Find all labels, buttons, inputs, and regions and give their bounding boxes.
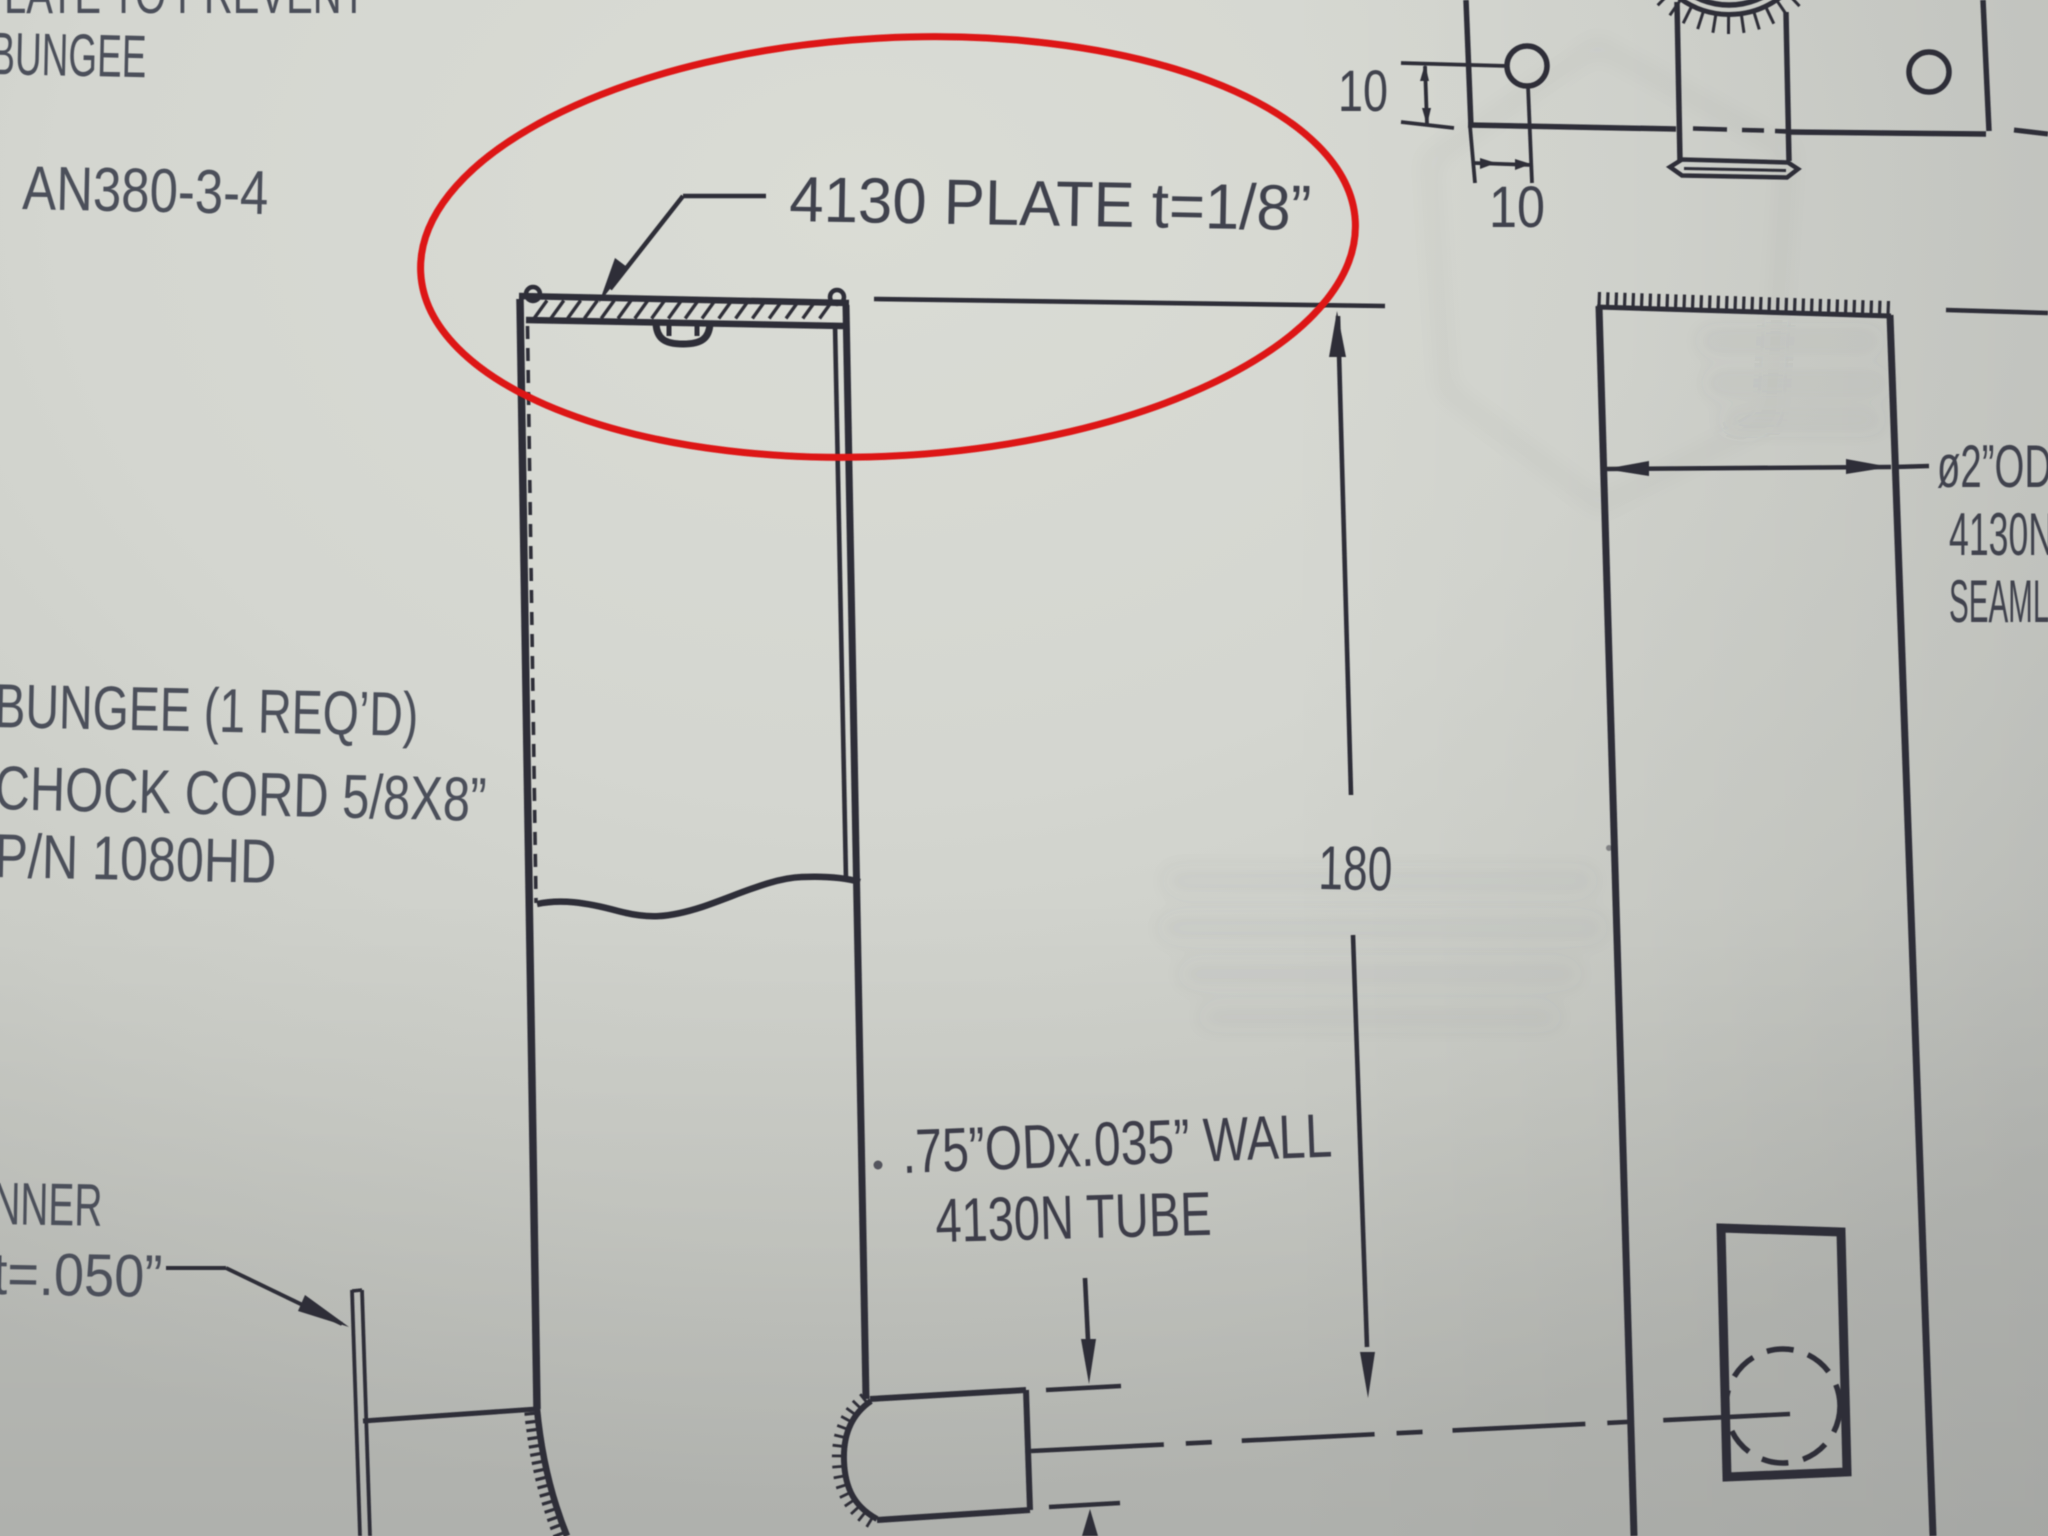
svg-text:10: 10	[1489, 175, 1545, 240]
svg-text:t=.050”: t=.050”	[0, 1240, 163, 1310]
svg-text:4130N TUBE: 4130N TUBE	[935, 1180, 1213, 1256]
svg-text:4130N: 4130N	[1949, 501, 2048, 568]
svg-text:NNER: NNER	[0, 1170, 103, 1239]
svg-text:AN380-3-4: AN380-3-4	[22, 154, 269, 228]
svg-text:10: 10	[1338, 59, 1388, 124]
svg-text:ø2”OD: ø2”OD	[1937, 433, 2048, 500]
svg-text:180: 180	[1318, 834, 1393, 904]
svg-text:SEAMLE: SEAMLE	[1949, 568, 2048, 635]
svg-text:BUNGEE: BUNGEE	[0, 20, 147, 90]
svg-text:4130 PLATE t=1/8”: 4130 PLATE t=1/8”	[789, 163, 1312, 244]
svg-text:BUNGEE (1 REQ’D): BUNGEE (1 REQ’D)	[0, 672, 419, 750]
svg-text:P/N 1080HD: P/N 1080HD	[0, 822, 277, 897]
